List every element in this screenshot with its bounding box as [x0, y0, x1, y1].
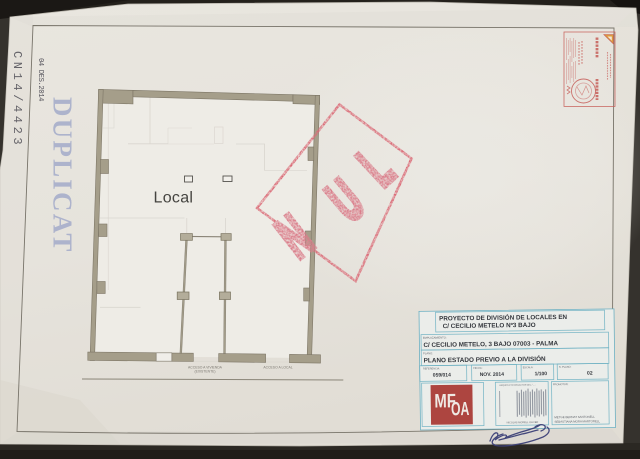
svg-text:NOV. 2014: NOV. 2014	[480, 372, 505, 378]
svg-text:C/ CECILIO METELO Nº3 BAJO: C/ CECILIO METELO Nº3 BAJO	[443, 322, 536, 330]
svg-text:SEBASTIANA MORA MARTORELL: SEBASTIANA MORA MARTORELL	[554, 419, 600, 424]
svg-text:1/100: 1/100	[535, 371, 548, 377]
svg-text:059/014: 059/014	[433, 372, 451, 378]
svg-text:PLANO:: PLANO:	[423, 351, 433, 355]
svg-text:NICOLÁS MORELL OLIVER: NICOLÁS MORELL OLIVER	[507, 421, 539, 424]
svg-text:REFERENCIA:: REFERENCIA:	[423, 367, 440, 370]
svg-text:02: 02	[587, 371, 593, 377]
svg-text:ACCESO A LOCAL: ACCESO A LOCAL	[263, 366, 292, 370]
svg-text:FECHA:: FECHA:	[473, 367, 483, 370]
svg-text:EMPLAZAMIENTO:: EMPLAZAMIENTO:	[423, 335, 447, 339]
svg-text:DUPLICAT: DUPLICAT	[48, 97, 78, 254]
svg-text:Local: Local	[154, 190, 194, 207]
svg-text:ESCALA:: ESCALA:	[523, 366, 534, 369]
svg-text:(EXISTENTE): (EXISTENTE)	[194, 370, 215, 374]
svg-text:ARQUITECTO REDACTOR DEL / ...:: ARQUITECTO REDACTOR DEL / ...:	[499, 383, 536, 386]
svg-text:CN14/4423: CN14/4423	[10, 51, 24, 148]
svg-text:OA: OA	[451, 399, 470, 419]
svg-text:04 DES.2014: 04 DES.2014	[36, 58, 44, 101]
svg-text:N. PLANO:: N. PLANO:	[559, 366, 572, 369]
svg-text:PROMOTOR:: PROMOTOR:	[553, 383, 569, 386]
